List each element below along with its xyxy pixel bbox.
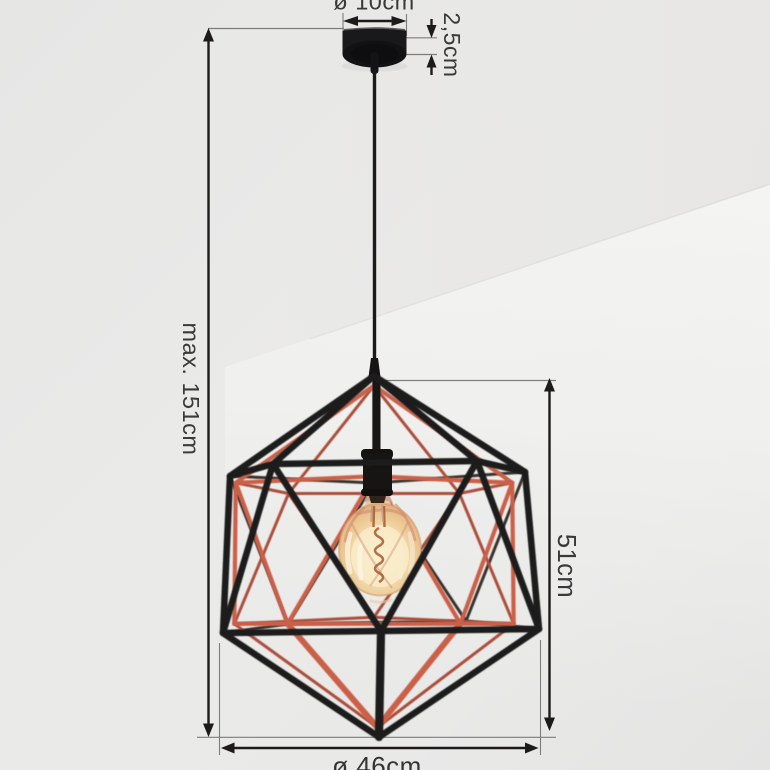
svg-text:max. 151cm: max. 151cm: [178, 323, 204, 456]
svg-text:51cm: 51cm: [552, 534, 580, 598]
svg-text:ø 46cm: ø 46cm: [332, 751, 422, 770]
svg-text:2,5cm: 2,5cm: [439, 12, 465, 77]
svg-text:ø 10cm: ø 10cm: [333, 0, 414, 15]
